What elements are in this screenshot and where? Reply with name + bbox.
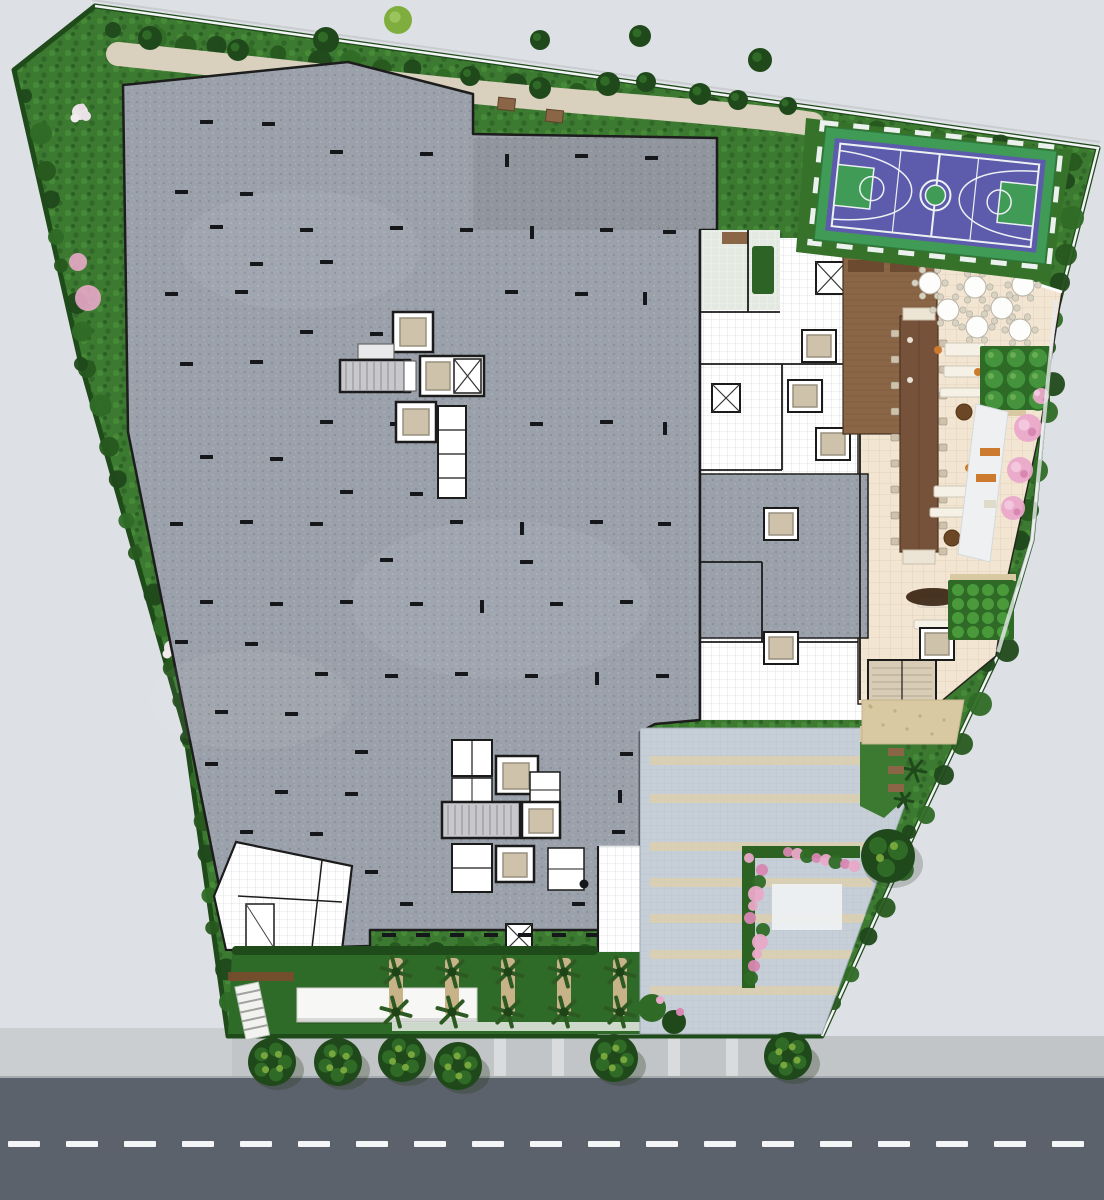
- bar-stool: [939, 418, 947, 425]
- joint-mark: [480, 600, 484, 613]
- tree-highlight: [231, 43, 240, 52]
- joint-mark: [600, 228, 613, 232]
- pink-tree: [1001, 496, 1025, 520]
- chair: [930, 307, 936, 313]
- tree-highlight: [262, 1066, 269, 1073]
- orchard-shrub: [982, 584, 995, 597]
- hedge-shrub: [109, 470, 127, 488]
- elevator-cab: [925, 633, 949, 655]
- corner-flowers: [656, 996, 664, 1004]
- bougainvillea: [748, 886, 764, 902]
- tree-highlight: [275, 1051, 282, 1058]
- tree-highlight: [276, 1065, 283, 1072]
- joint-mark: [645, 156, 658, 160]
- joint-mark: [400, 902, 413, 906]
- edge-dash: [450, 933, 464, 937]
- orchard-shrub: [967, 626, 980, 639]
- chair: [1027, 295, 1033, 301]
- tree-foliage: [869, 837, 887, 855]
- tree-highlight: [794, 1057, 801, 1064]
- round-table: [964, 276, 986, 298]
- joint-mark: [370, 332, 383, 336]
- edge-dash: [552, 933, 566, 937]
- key-left: [834, 164, 874, 209]
- paver-strip: [552, 1036, 564, 1076]
- hedge-shrub: [54, 259, 68, 273]
- chair: [1009, 314, 1015, 320]
- sand-dot: [893, 709, 896, 712]
- orchard-shrub: [952, 612, 965, 625]
- joint-mark: [240, 830, 253, 834]
- tree-highlight: [402, 1064, 409, 1071]
- bar-sink: [907, 377, 913, 383]
- stairwell: [340, 360, 410, 392]
- hedge-shrub: [90, 394, 112, 416]
- joint-mark: [200, 600, 213, 604]
- joint-mark: [595, 672, 599, 685]
- pink-highlight: [1004, 500, 1014, 510]
- elevator-cab: [503, 763, 529, 789]
- bougainvillea: [800, 849, 814, 863]
- joint-mark: [365, 870, 378, 874]
- round-table: [937, 299, 959, 321]
- tree-highlight: [464, 1062, 471, 1069]
- slab-patch: [350, 520, 650, 680]
- hedge-band: [232, 946, 598, 955]
- joint-mark: [262, 122, 275, 126]
- joint-mark: [250, 360, 263, 364]
- bougainvillea: [744, 912, 756, 924]
- tree-highlight: [612, 1045, 619, 1052]
- palm-crown: [560, 968, 569, 977]
- hedge-shrub: [74, 357, 88, 371]
- joint-mark: [200, 455, 213, 459]
- bougainvillea: [748, 901, 758, 911]
- bougainvillea: [744, 971, 758, 985]
- elevator-cab: [769, 513, 793, 535]
- lane-dash: [1052, 1141, 1084, 1147]
- small-tree-crown: [911, 767, 918, 774]
- clipped-shrub: [984, 348, 1004, 368]
- chair: [964, 297, 970, 303]
- chair: [981, 337, 987, 343]
- hedge-shrub: [48, 229, 64, 245]
- joint-mark: [612, 830, 625, 834]
- bar-stool: [891, 382, 899, 389]
- tree-highlight: [389, 11, 400, 22]
- lane-dash: [240, 1141, 272, 1147]
- bar-stool: [891, 538, 899, 545]
- planter: [752, 246, 774, 294]
- palm-crown: [616, 968, 625, 977]
- hedge-shrub: [36, 161, 56, 181]
- joint-mark: [330, 150, 343, 154]
- chair: [991, 318, 997, 324]
- joint-mark: [180, 362, 193, 366]
- chair: [989, 324, 995, 330]
- chair: [960, 307, 966, 313]
- lane-dash: [356, 1141, 388, 1147]
- joint-mark: [310, 522, 323, 526]
- lane-dash: [182, 1141, 214, 1147]
- palm-garden: Palm garden: [228, 946, 648, 1040]
- joint-mark: [618, 790, 622, 803]
- pink-tree: [75, 285, 101, 311]
- sofa: [945, 343, 985, 356]
- orchard-shrub: [952, 598, 965, 611]
- chair: [1012, 295, 1018, 301]
- flower-cluster: [81, 111, 91, 121]
- slab-patch: [150, 650, 350, 750]
- round-table: [966, 316, 988, 338]
- tree-highlight: [609, 1064, 616, 1071]
- bar-stool: [891, 486, 899, 493]
- joint-mark: [245, 642, 258, 646]
- side-table: [934, 346, 942, 354]
- bar-stool: [939, 548, 947, 555]
- joint-mark: [175, 190, 188, 194]
- lane-dash: [878, 1141, 910, 1147]
- slab-shade: [473, 138, 717, 230]
- chair: [1005, 282, 1011, 288]
- stairwell: [442, 802, 520, 838]
- bar-stool: [891, 434, 899, 441]
- tree-highlight: [775, 1048, 782, 1055]
- sand-dot: [918, 714, 921, 717]
- flower-cluster: [163, 650, 172, 659]
- shrub-highlight: [1032, 373, 1038, 379]
- joint-mark: [663, 422, 667, 435]
- bar-stool: [891, 460, 899, 467]
- tree-highlight: [620, 1056, 627, 1063]
- joint-mark: [390, 226, 403, 230]
- sand-dot: [905, 727, 908, 730]
- joint-mark: [210, 225, 223, 229]
- paver-strip: [726, 1036, 738, 1076]
- chair: [1014, 305, 1020, 311]
- chair: [1009, 340, 1015, 346]
- elevator-cab: [426, 362, 450, 390]
- hedge-shrub: [105, 22, 121, 38]
- lane-dash: [994, 1141, 1026, 1147]
- joint-mark: [530, 422, 543, 426]
- key-right: [997, 182, 1037, 227]
- joint-mark: [550, 602, 563, 606]
- joint-mark: [345, 792, 358, 796]
- joint-mark: [310, 832, 323, 836]
- joint-mark: [200, 120, 213, 124]
- bougainvillea: [840, 859, 850, 869]
- service-rooms: [438, 406, 466, 498]
- bar-sink: [907, 337, 913, 343]
- joint-mark: [240, 192, 253, 196]
- elevator-cab: [793, 385, 817, 407]
- stair-landing: [404, 361, 416, 391]
- orchard-shrub: [952, 626, 965, 639]
- clipped-shrub: [1028, 369, 1048, 389]
- asphalt: [0, 1078, 1104, 1200]
- joint-mark: [300, 330, 313, 334]
- palm-crown: [616, 1008, 625, 1017]
- column-dot: [580, 880, 589, 889]
- edge-dash: [518, 933, 532, 937]
- chair: [966, 337, 972, 343]
- lane-dash: [530, 1141, 562, 1147]
- elevator-cab: [400, 318, 426, 346]
- bar-stool: [891, 512, 899, 519]
- chair: [919, 293, 925, 299]
- chair: [957, 284, 963, 290]
- hedge-shrub: [18, 89, 32, 103]
- joint-mark: [658, 522, 671, 526]
- lane-dash: [414, 1141, 446, 1147]
- pink-highlight: [1034, 390, 1040, 396]
- bougainvillea: [752, 949, 762, 959]
- tree-highlight: [261, 1052, 268, 1059]
- public-road: Public road: [0, 1074, 1104, 1200]
- paver-strip: [494, 1036, 506, 1076]
- hedge-shrub: [917, 806, 935, 824]
- tree-highlight: [789, 1043, 796, 1050]
- tree-highlight: [329, 1050, 336, 1057]
- tree-foliage: [888, 840, 908, 860]
- tree-highlight: [601, 1053, 608, 1060]
- chair: [984, 305, 990, 311]
- chair: [979, 297, 985, 303]
- path-bench: [545, 109, 563, 123]
- palm-crown: [504, 968, 513, 977]
- joint-mark: [340, 600, 353, 604]
- joint-mark: [520, 522, 524, 535]
- tree-highlight: [639, 75, 647, 83]
- elevator-cab: [403, 409, 429, 435]
- joint-mark: [525, 674, 538, 678]
- chair: [1006, 292, 1012, 298]
- edge-dash: [382, 933, 396, 937]
- tree-highlight: [343, 1053, 350, 1060]
- palm-crown: [560, 1008, 569, 1017]
- tree-highlight: [463, 69, 471, 77]
- joint-mark: [620, 752, 633, 756]
- tree-highlight: [318, 32, 328, 42]
- hedge-shrub: [99, 437, 119, 457]
- joint-mark: [165, 292, 178, 296]
- clipped-shrub: [1028, 348, 1048, 368]
- joint-mark: [530, 226, 534, 239]
- slab-patch: [180, 190, 420, 310]
- elevator-cab: [529, 809, 553, 833]
- joint-mark: [575, 292, 588, 296]
- chair: [952, 294, 958, 300]
- orchard-shrub: [967, 612, 980, 625]
- orchard-shrub: [982, 626, 995, 639]
- tree-highlight: [533, 81, 542, 90]
- hedge-shrub: [934, 765, 954, 785]
- tree-highlight: [600, 76, 610, 86]
- chair: [1002, 327, 1008, 333]
- bar-stool: [939, 522, 947, 529]
- hedge-shrub: [42, 191, 60, 209]
- vestibule: [358, 344, 394, 359]
- hedge-shrub: [205, 921, 219, 935]
- pink-shade: [1020, 470, 1028, 478]
- tree-highlight: [445, 1063, 452, 1070]
- joint-mark: [450, 520, 463, 524]
- patio-table: [984, 500, 996, 508]
- joint-mark: [315, 672, 328, 676]
- hedge-shrub: [1060, 206, 1084, 230]
- bar-stool: [891, 330, 899, 337]
- orchard-shrub: [952, 584, 965, 597]
- elevator-cab: [807, 335, 831, 357]
- lane-dash: [762, 1141, 794, 1147]
- tree: [460, 66, 480, 86]
- bougainvillea: [752, 934, 768, 950]
- small-tree-crown: [901, 797, 908, 804]
- sand-dot: [881, 723, 884, 726]
- tree-highlight: [455, 1072, 462, 1079]
- sand-dot: [930, 732, 933, 735]
- chair: [1035, 282, 1041, 288]
- joint-mark: [215, 710, 228, 714]
- sofa: [940, 388, 984, 397]
- lane-dash: [646, 1141, 678, 1147]
- tree-highlight: [533, 33, 541, 41]
- lane-dash: [936, 1141, 968, 1147]
- tree-highlight: [752, 52, 762, 62]
- site-plan-svg: Public road Street sidewalk Landscaped r…: [0, 0, 1104, 1200]
- hedge-shrub: [30, 123, 52, 145]
- tree: [636, 72, 656, 92]
- lane-dash: [704, 1141, 736, 1147]
- joint-mark: [340, 490, 353, 494]
- joint-mark: [663, 230, 676, 234]
- joint-mark: [275, 790, 288, 794]
- slab-intrusion: [700, 474, 868, 638]
- chair: [959, 324, 965, 330]
- palm-crown: [448, 968, 457, 977]
- shrub-highlight: [988, 373, 994, 379]
- tree-highlight: [395, 1045, 402, 1052]
- lane-dash: [588, 1141, 620, 1147]
- palm-crown: [392, 1008, 401, 1017]
- tree-highlight: [340, 1067, 347, 1074]
- chair: [937, 294, 943, 300]
- pink-highlight: [1011, 462, 1021, 472]
- lane-dash: [8, 1141, 40, 1147]
- joint-mark: [420, 152, 433, 156]
- tree-highlight: [781, 99, 788, 106]
- lane-dash: [298, 1141, 330, 1147]
- bar-stool: [939, 470, 947, 477]
- bougainvillea: [812, 853, 822, 863]
- tree-highlight: [731, 93, 739, 101]
- joint-mark: [385, 674, 398, 678]
- hedge-shrub: [968, 692, 992, 716]
- sand-dot: [869, 705, 872, 708]
- shrub-highlight: [1010, 394, 1016, 400]
- palm-crown: [392, 968, 401, 977]
- tree-highlight: [326, 1064, 333, 1071]
- entry-path: [772, 884, 842, 930]
- bougainvillea: [756, 864, 768, 876]
- joint-mark: [205, 762, 218, 766]
- tree-highlight: [693, 87, 702, 96]
- ottoman: [956, 404, 972, 420]
- tree-highlight: [142, 30, 152, 40]
- joint-mark: [620, 600, 633, 604]
- ottoman: [944, 530, 960, 546]
- chair: [991, 292, 997, 298]
- round-table: [1009, 319, 1031, 341]
- tree: [779, 97, 797, 115]
- deck-sofa: [848, 260, 884, 272]
- elevator-cab: [769, 637, 793, 659]
- chair: [952, 320, 958, 326]
- tree-foliage: [390, 1063, 404, 1077]
- hedge-shrub: [876, 898, 896, 918]
- joint-mark: [505, 290, 518, 294]
- bougainvillea: [748, 960, 760, 972]
- patio-bench: [980, 448, 1000, 456]
- orchard-shrub: [997, 598, 1010, 611]
- joint-mark: [520, 560, 533, 564]
- lane-dash: [66, 1141, 98, 1147]
- joint-mark: [235, 290, 248, 294]
- lane-dash: [472, 1141, 504, 1147]
- soil-bed: [228, 972, 294, 981]
- edge-dash: [484, 933, 498, 937]
- walk-bench: [888, 784, 904, 792]
- chair: [1024, 340, 1030, 346]
- sand-court: [862, 700, 964, 744]
- palm-crown: [504, 1008, 513, 1017]
- bar-stool: [891, 356, 899, 363]
- tree: [728, 90, 748, 110]
- pink-tree: [69, 253, 87, 271]
- chair: [937, 320, 943, 326]
- site-plan-rendering: Public road Street sidewalk Landscaped r…: [0, 0, 1104, 1200]
- walk-bench: [888, 766, 904, 774]
- joint-mark: [320, 260, 333, 264]
- joint-mark: [300, 228, 313, 232]
- bougainvillea: [783, 847, 793, 857]
- pink-shade: [1028, 428, 1036, 436]
- lane-dash: [820, 1141, 852, 1147]
- joint-mark: [240, 520, 253, 524]
- joint-mark: [410, 602, 423, 606]
- pink-shade: [1013, 508, 1020, 515]
- flower-cluster: [71, 114, 80, 123]
- orchard-shrub: [982, 598, 995, 611]
- hedge-shrub: [118, 513, 134, 529]
- joint-mark: [460, 228, 473, 232]
- tree-highlight: [454, 1053, 461, 1060]
- chair: [942, 280, 948, 286]
- orchard-shrub: [982, 612, 995, 625]
- bougainvillea: [849, 860, 861, 872]
- joint-mark: [320, 420, 333, 424]
- joint-mark: [380, 558, 393, 562]
- palm-crown: [448, 1008, 457, 1017]
- driveway-stripe: [650, 756, 872, 765]
- chair: [919, 267, 925, 273]
- shrub-highlight: [1010, 352, 1016, 358]
- sand-dot: [942, 718, 945, 721]
- clipped-shrub: [984, 369, 1004, 389]
- walk-bench: [888, 748, 904, 756]
- joint-mark: [643, 292, 647, 305]
